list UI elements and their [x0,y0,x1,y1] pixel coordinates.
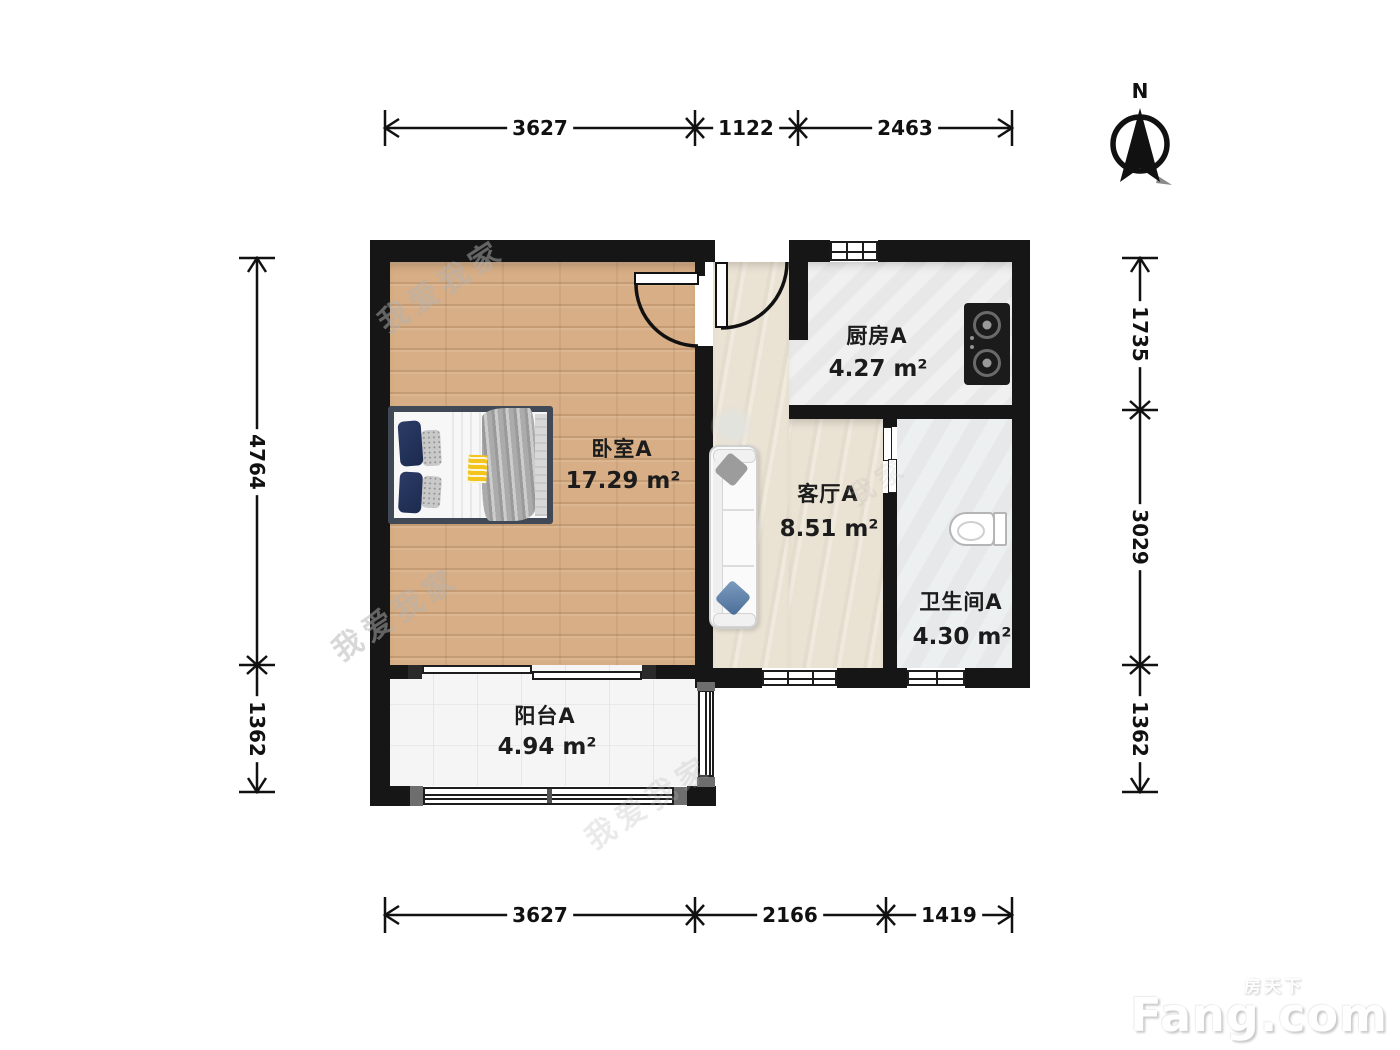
window-line [812,672,814,684]
entry-door-leaf [715,262,728,328]
balcony-sliding-door-panel [532,671,642,680]
window-line [787,672,789,684]
fang-logo: 房天下 Fang.com [1162,970,1392,1042]
dim-top-3: 2463 [872,116,938,140]
window-cap [674,787,687,805]
wall-segment [789,405,1012,419]
bed-folded-cover [535,414,547,516]
dim-bottom-1: 3627 [507,903,573,927]
dim-left-2: 1362 [245,696,269,762]
bed-blanket [482,408,535,521]
toilet-seat [957,521,985,541]
bed-pillow [397,420,423,466]
floor-living [789,419,883,668]
toilet-bowl [949,512,995,546]
wall-segment [789,240,808,340]
toilet [949,510,1009,548]
wall-segment [370,786,410,806]
stove-knob [970,336,974,340]
wall-segment [656,665,695,679]
balcony-sliding-door-panel [422,665,532,674]
sofa-seam [723,509,754,511]
compass-n-label: N [1132,79,1149,103]
wall-segment [883,493,897,668]
window-line [709,692,711,775]
dim-right-3: 1362 [1128,696,1152,762]
dim-top-2: 1122 [713,116,779,140]
dim-left-1: 4764 [245,429,269,495]
stove-burner [973,311,1001,339]
bed-book [468,455,488,484]
room-label-balcony: 阳台A [514,700,575,730]
wall-segment [878,240,1012,262]
wall-segment [370,240,390,806]
room-label-living: 客厅A [797,478,858,508]
window-cap [410,786,423,806]
wall-segment [1012,240,1030,688]
window-divider [547,789,552,803]
bathroom-window [907,670,965,686]
dim-right-2: 3029 [1128,504,1152,570]
room-area-bathroom: 4.30 m² [913,624,1012,650]
window-line [936,672,938,684]
room-label-bedroom: 卧室A [591,433,652,463]
bed-pillow [398,471,423,513]
bed-pillow [421,430,442,467]
window-line [846,243,848,259]
sliding-door-cap [642,665,656,679]
living-window [762,670,837,686]
wall-segment [837,668,907,688]
kitchen-window [830,241,878,261]
north-compass: N [1100,72,1180,192]
toilet-tank [993,512,1007,546]
window-line [862,243,864,259]
dim-bottom-3: 1419 [916,903,982,927]
window-cap [697,777,715,787]
sofa-seam [723,565,754,567]
dim-bottom-2: 2166 [757,903,823,927]
sliding-door-cap [408,665,422,679]
room-label-bathroom: 卫生间A [919,586,1002,616]
bathroom-sliding-door-panel [888,459,897,493]
room-area-bedroom: 17.29 m² [566,468,681,494]
room-area-balcony: 4.94 m² [498,734,597,760]
balcony-bottom-window [423,787,674,805]
bed-pillow [421,475,442,508]
fang-logo-en: Fang.com [1130,988,1388,1042]
wall-segment [687,786,716,806]
window-line [705,692,707,775]
window-line [764,678,835,680]
sofa-armrest [713,613,756,627]
plant [710,404,754,448]
window-line [832,251,876,253]
wall-segment [390,665,410,679]
window-cap [697,682,715,691]
bathroom-sliding-door-panel [883,427,892,461]
floorplan-canvas: 卧室A 17.29 m² 厨房A 4.27 m² 客厅A 8.51 m² 卫生间… [0,0,1400,1050]
stove-burner [973,349,1001,377]
dim-right-1: 1735 [1128,301,1152,367]
wall-segment [965,668,1030,688]
bedroom-door-leaf [634,272,699,285]
dim-top-1: 3627 [507,116,573,140]
stove [964,303,1010,385]
room-label-kitchen: 厨房A [846,320,907,350]
bed [388,406,553,524]
balcony-side-window [698,690,714,777]
room-area-living: 8.51 m² [780,516,879,542]
wall-segment [390,240,715,262]
wall-segment [808,240,830,262]
stove-knob [970,345,974,349]
room-area-kitchen: 4.27 m² [829,356,928,382]
wall-segment [883,419,897,427]
sofa [709,445,758,629]
